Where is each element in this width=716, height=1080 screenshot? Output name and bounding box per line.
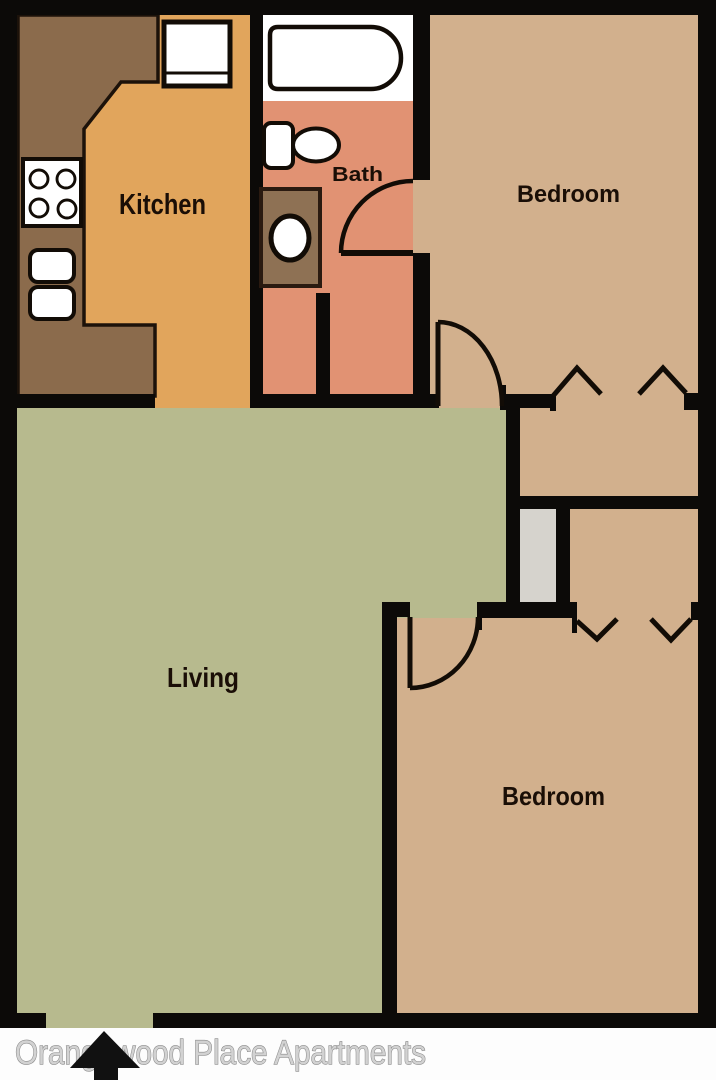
svg-text:Bedroom: Bedroom (517, 181, 620, 208)
svg-text:Bedroom: Bedroom (502, 781, 605, 811)
svg-text:Living: Living (167, 662, 239, 693)
svg-text:Kitchen: Kitchen (119, 189, 206, 221)
svg-text:Bath: Bath (332, 164, 383, 186)
